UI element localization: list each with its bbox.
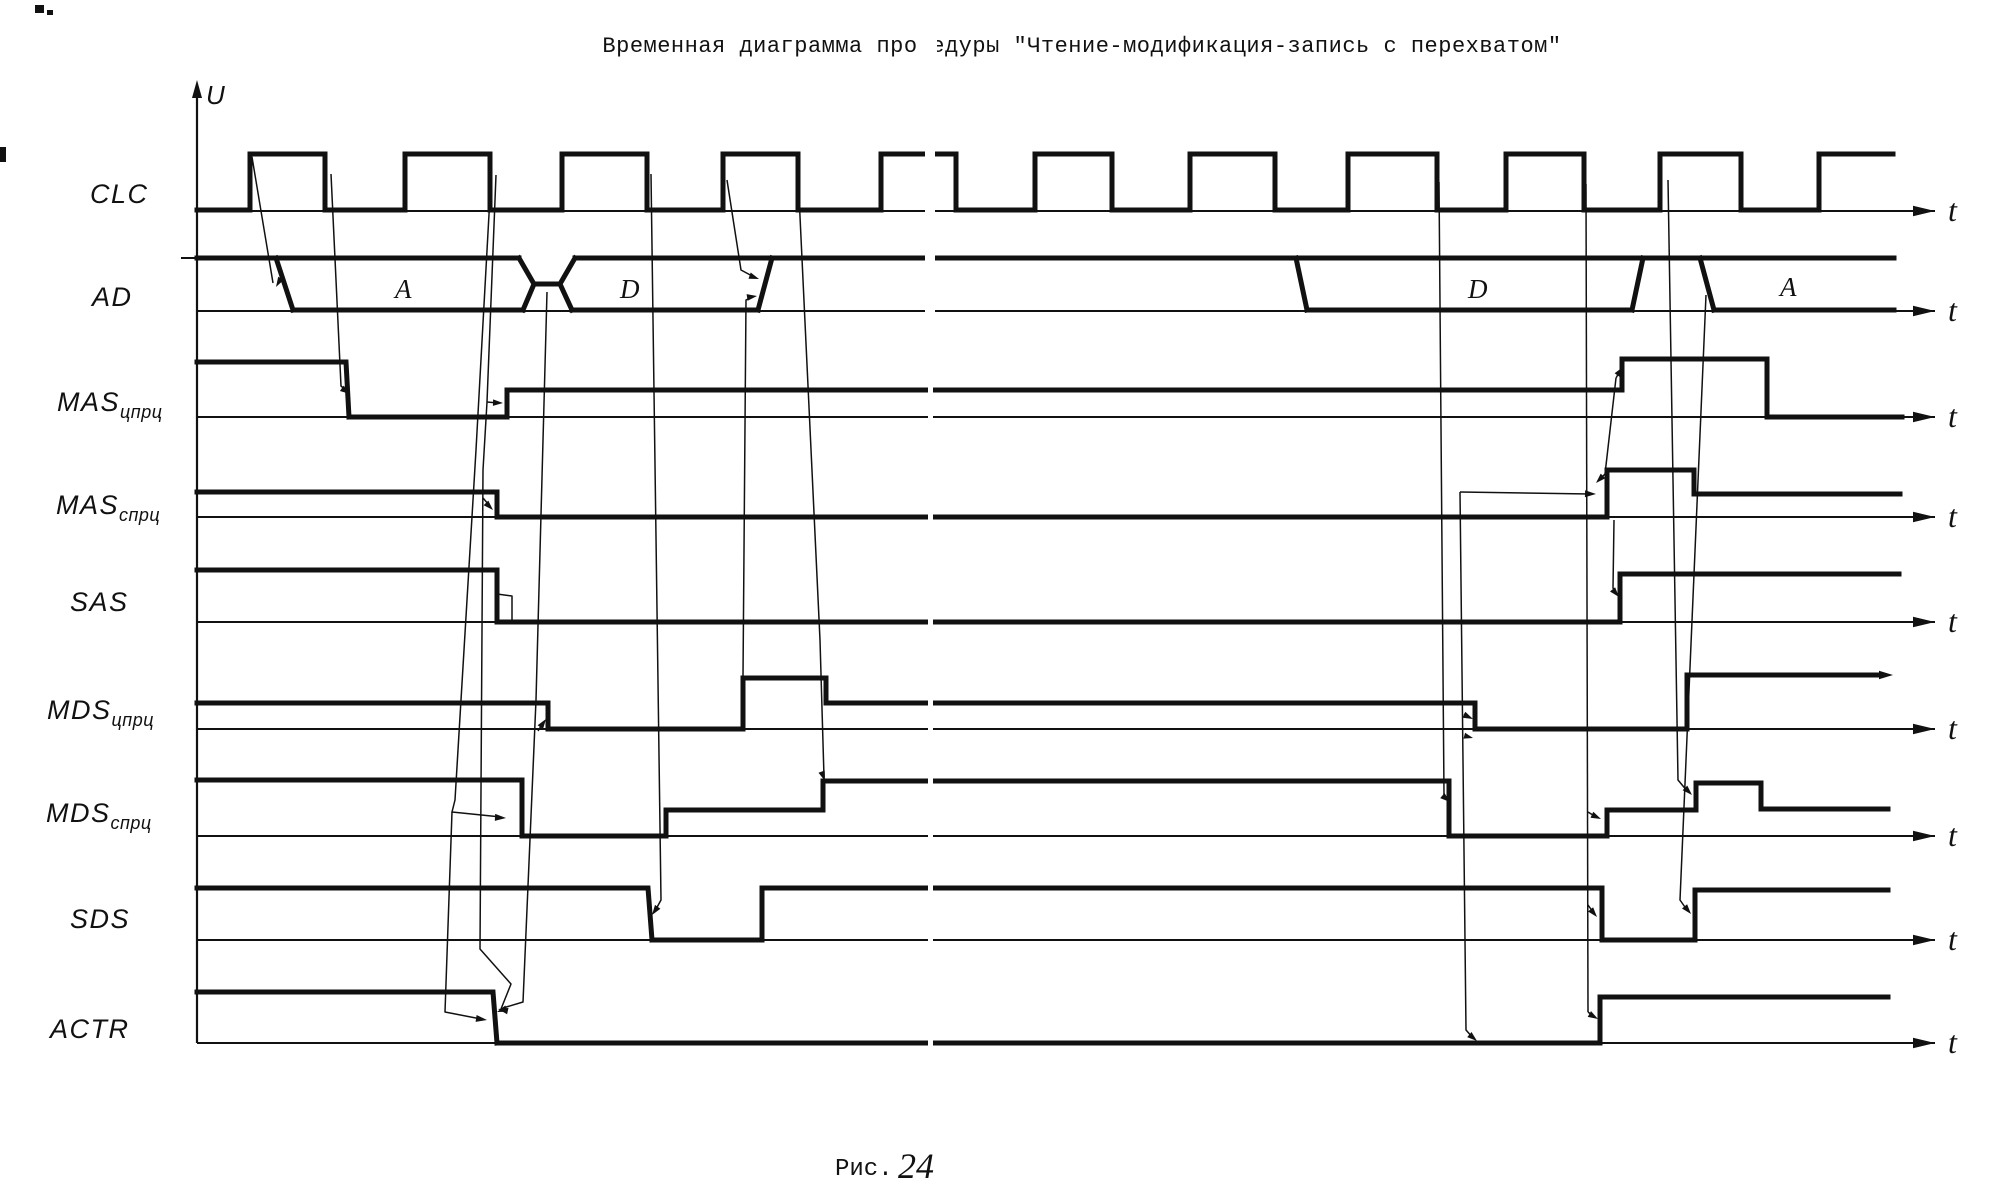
svg-text:U: U <box>206 80 225 110</box>
svg-text:24: 24 <box>898 1146 934 1186</box>
svg-text:t: t <box>1948 1024 1958 1060</box>
svg-text:t: t <box>1948 292 1958 328</box>
svg-text:t: t <box>1948 398 1958 434</box>
svg-text:t: t <box>1948 192 1958 228</box>
svg-text:Временная диаграмма процедуры: Временная диаграмма процедуры "Чтение-мо… <box>602 34 1561 59</box>
svg-text:SDS: SDS <box>70 904 130 934</box>
svg-text:t: t <box>1948 921 1958 957</box>
svg-text:t: t <box>1948 603 1958 639</box>
svg-text:t: t <box>1948 498 1958 534</box>
svg-text:A: A <box>1778 272 1797 302</box>
svg-text:ACTR: ACTR <box>48 1014 130 1044</box>
svg-text:SAS: SAS <box>70 587 129 617</box>
svg-text:t: t <box>1948 710 1958 746</box>
svg-text:Рис.: Рис. <box>835 1156 893 1183</box>
svg-text:CLC: CLC <box>90 179 149 209</box>
svg-text:D: D <box>619 274 640 304</box>
svg-text:AD: AD <box>90 282 133 312</box>
svg-text:t: t <box>1948 817 1958 853</box>
svg-text:A: A <box>393 274 412 304</box>
svg-text:D: D <box>1467 274 1488 304</box>
